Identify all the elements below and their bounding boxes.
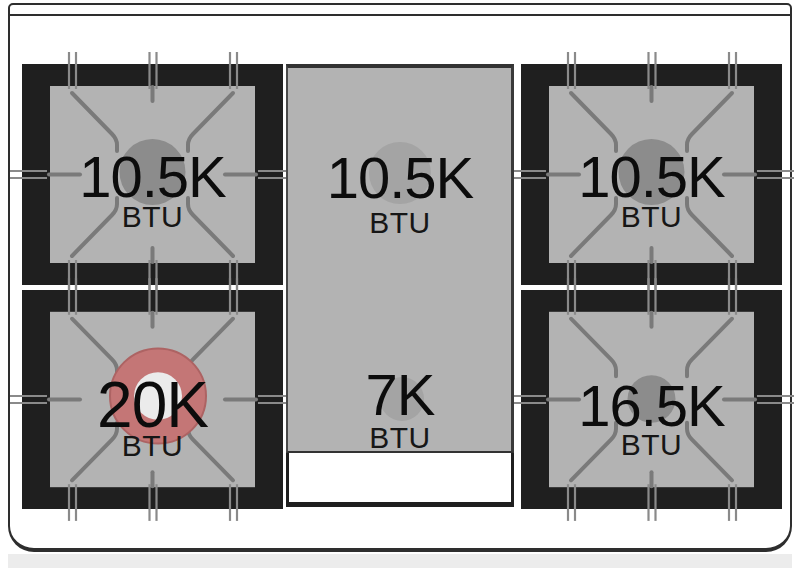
burner-rating-label: 10.5K bbox=[286, 149, 514, 207]
burner-rating-label: 10.5K bbox=[521, 148, 782, 206]
cooktop-base-strip bbox=[8, 554, 792, 568]
burner-unit-label: BTU bbox=[22, 431, 283, 461]
burner-unit-label: BTU bbox=[286, 208, 514, 238]
burner-rating-label: 20K bbox=[22, 373, 283, 437]
burner-unit-label: BTU bbox=[22, 202, 283, 232]
burner-rating-label: 10.5K bbox=[22, 148, 283, 206]
griddle-section[interactable]: 10.5K BTU 7K BTU bbox=[286, 64, 514, 507]
burner-unit-label: BTU bbox=[521, 430, 782, 460]
burner-unit-label: BTU bbox=[521, 202, 782, 232]
burner-back-left[interactable]: 10.5K BTU bbox=[22, 64, 283, 285]
burner-front-left[interactable]: 20K BTU bbox=[22, 290, 283, 509]
burner-front-right[interactable]: 16.5K BTU bbox=[521, 290, 782, 509]
burner-rating-label: 7K bbox=[286, 366, 514, 424]
burner-unit-label: BTU bbox=[286, 423, 514, 453]
cooktop-diagram: 10.5K BTU bbox=[0, 0, 810, 568]
back-rail-line bbox=[8, 14, 792, 16]
burner-back-right[interactable]: 10.5K BTU bbox=[521, 64, 782, 285]
burner-rating-label: 16.5K bbox=[521, 377, 782, 435]
